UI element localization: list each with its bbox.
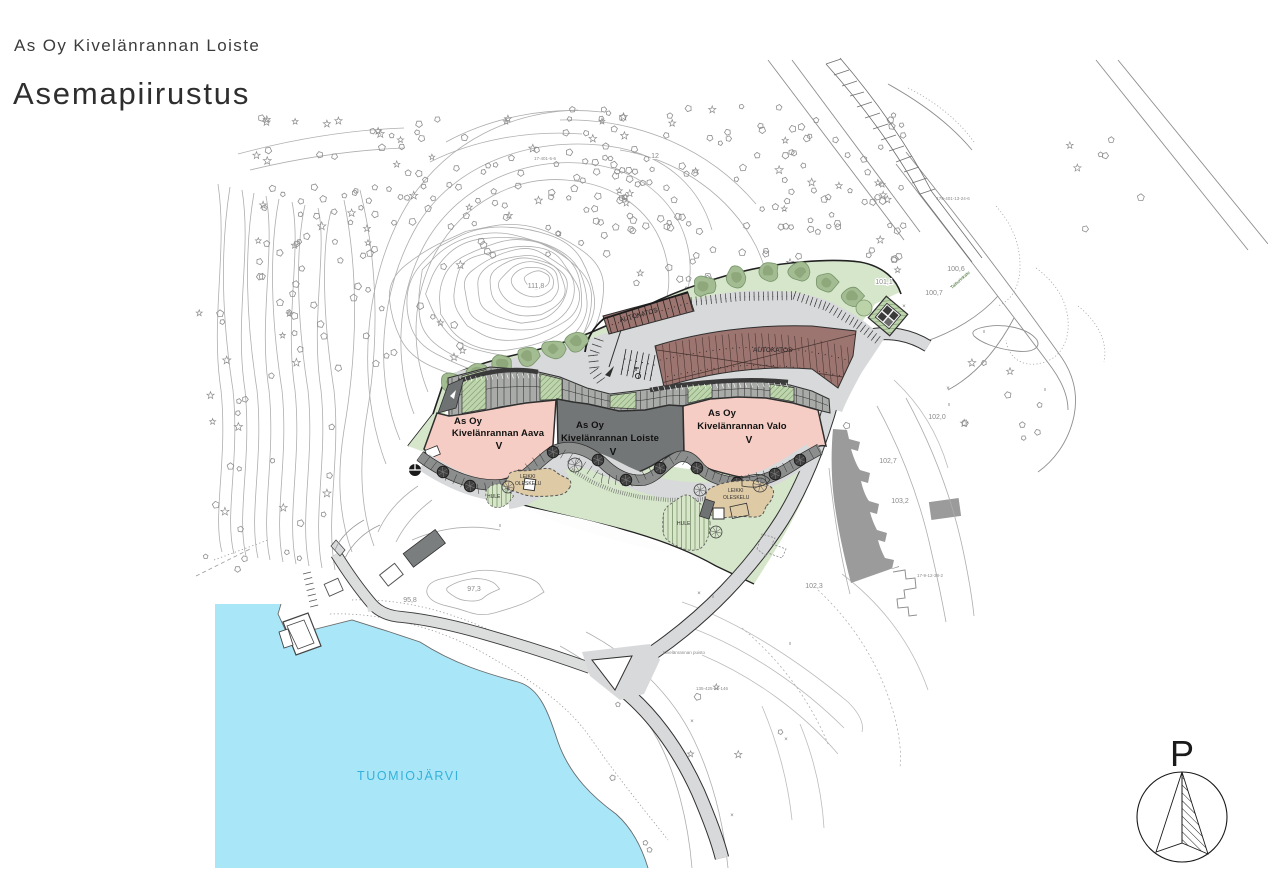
svg-text:×: × xyxy=(690,719,694,725)
svg-text:LEIKKI: LEIKKI xyxy=(728,488,744,494)
svg-text:102,0: 102,0 xyxy=(928,414,946,421)
svg-text:100,7: 100,7 xyxy=(925,290,943,297)
svg-text:17-401-5-6: 17-401-5-6 xyxy=(534,156,557,161)
svg-text:Asemapiirustus: Asemapiirustus xyxy=(13,76,250,111)
svg-text:×: × xyxy=(946,386,950,392)
svg-text:102,7: 102,7 xyxy=(879,458,897,465)
svg-text:HULE: HULE xyxy=(487,494,501,500)
svg-text:95,8: 95,8 xyxy=(403,597,417,604)
svg-text:100,6: 100,6 xyxy=(947,266,965,273)
svg-text:AUTOKATOS: AUTOKATOS xyxy=(753,347,793,354)
svg-text:×: × xyxy=(902,304,906,310)
svg-text:As Oy: As Oy xyxy=(454,416,483,427)
svg-text:II: II xyxy=(712,594,715,599)
svg-text:P: P xyxy=(1170,733,1194,774)
svg-text:135-425-12-146: 135-425-12-146 xyxy=(696,686,729,691)
svg-text:As Oy Kivelänrannan Loiste: As Oy Kivelänrannan Loiste xyxy=(14,36,260,55)
svg-text:×: × xyxy=(730,813,734,819)
svg-text:OLESKELU: OLESKELU xyxy=(723,495,750,501)
svg-text:V: V xyxy=(496,441,503,452)
svg-text:As Oy: As Oy xyxy=(708,408,737,419)
svg-text:Kivelänrannan Valo: Kivelänrannan Valo xyxy=(697,421,787,432)
svg-text:×: × xyxy=(697,591,701,597)
svg-text:17-9-12-38-2: 17-9-12-38-2 xyxy=(917,573,944,578)
svg-text:12: 12 xyxy=(651,153,659,160)
svg-text:101,1: 101,1 xyxy=(875,279,893,286)
svg-text:TUOMIOJÄRVI: TUOMIOJÄRVI xyxy=(357,769,460,783)
svg-text:II: II xyxy=(789,641,792,646)
svg-text:II: II xyxy=(948,402,951,407)
svg-text:179-401-13-24-6: 179-401-13-24-6 xyxy=(936,196,970,201)
svg-text:II: II xyxy=(499,523,502,528)
svg-text:Kivelänrannan Aava: Kivelänrannan Aava xyxy=(452,428,545,439)
svg-text:HULE: HULE xyxy=(677,521,691,527)
svg-text:II: II xyxy=(1044,387,1047,392)
svg-text:V: V xyxy=(746,435,753,446)
svg-text:97,3: 97,3 xyxy=(467,586,481,593)
svg-text:V: V xyxy=(610,447,617,458)
svg-text:OLESKELU: OLESKELU xyxy=(515,481,542,487)
svg-text:As Oy: As Oy xyxy=(576,420,605,431)
svg-text:102,3: 102,3 xyxy=(805,583,823,590)
svg-text:LEIKKI: LEIKKI xyxy=(520,474,536,480)
svg-text:Kivelänrannan puisto: Kivelänrannan puisto xyxy=(663,650,706,655)
svg-text:103,2: 103,2 xyxy=(891,498,909,505)
svg-text:×: × xyxy=(784,737,788,743)
svg-text:II: II xyxy=(983,329,986,334)
svg-text:111,8: 111,8 xyxy=(528,283,545,290)
